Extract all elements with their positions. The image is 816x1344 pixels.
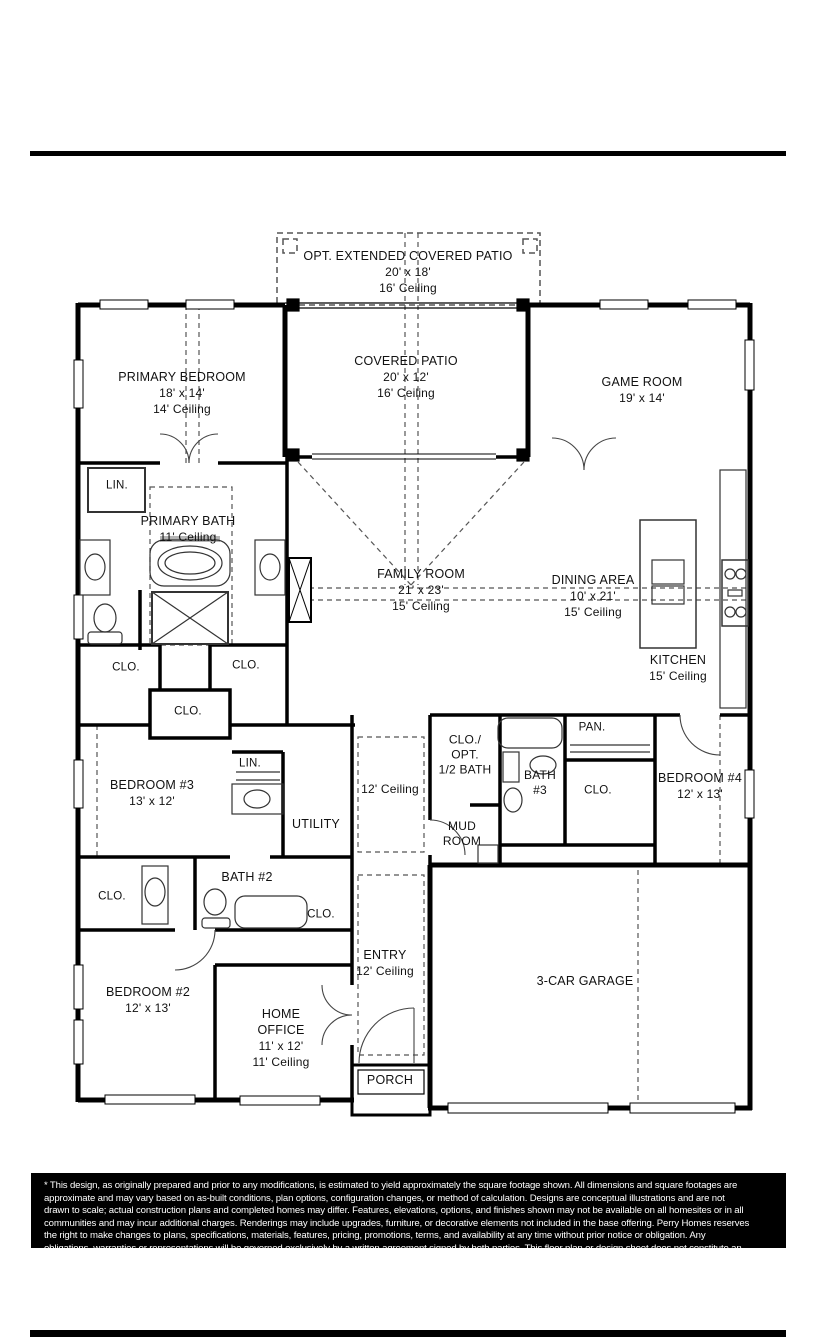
room-name: BEDROOM #4 [658, 770, 742, 786]
room-label-bedroom-2: BEDROOM #2 12' x 13' [106, 984, 190, 1016]
room-label-half-bath: CLO./ OPT. 1/2 BATH [439, 733, 492, 778]
room-dims: 12' x 13' [658, 786, 742, 802]
hall-ceiling-label: 12' Ceiling [361, 781, 419, 797]
floor-plan-page: OPT. EXTENDED COVERED PATIO 20' x 18' 16… [0, 0, 816, 1344]
room-name: KITCHEN [649, 652, 707, 668]
room-label-primary-bedroom: PRIMARY BEDROOM 18' x 14' 14' Ceiling [118, 369, 246, 417]
disclaimer-line: obligations, warranties or representatio… [44, 1243, 773, 1248]
room-label-dining-area: DINING AREA 10' x 21' 15' Ceiling [552, 572, 635, 620]
room-ceiling: 15' Ceiling [377, 598, 465, 614]
toilet-icon [204, 889, 226, 915]
tub-icon [498, 718, 562, 748]
room-ceiling: 14' Ceiling [118, 401, 246, 417]
room-name: GAME ROOM [602, 374, 683, 390]
cooktop-icon [722, 560, 748, 626]
sink-icon [145, 878, 165, 906]
toilet-icon [504, 788, 522, 812]
sink-icon [85, 554, 105, 580]
disclaimer-line: communities and may incur additional cha… [44, 1218, 773, 1231]
room-label-utility: UTILITY [292, 816, 340, 832]
room-ceiling: 11' Ceiling [141, 529, 236, 545]
room-dims: 10' x 21' [552, 588, 635, 604]
room-label-pantry: PAN. [579, 722, 606, 735]
room-label-bath-2: BATH #2 [221, 869, 272, 885]
room-ceiling: 15' Ceiling [552, 604, 635, 620]
room-label-bath-3: BATH #3 [524, 768, 556, 798]
tub-icon [235, 896, 307, 928]
closet-label-a: CLO. [112, 662, 140, 675]
room-name: FAMILY ROOM [377, 566, 465, 582]
disclaimer-line: drawn to scale; actual construction plan… [44, 1205, 773, 1218]
room-name: PRIMARY BATH [141, 513, 236, 529]
room-name: OPT. EXTENDED COVERED PATIO [303, 248, 512, 264]
closet-label-linen-primary: LIN. [106, 480, 128, 493]
room-label-kitchen: KITCHEN 15' Ceiling [649, 652, 707, 684]
room-dims: 12' x 13' [106, 1000, 190, 1016]
room-dims: 13' x 12' [110, 793, 194, 809]
bed3-vanity [232, 772, 283, 814]
room-dims: 21' x 23' [377, 582, 465, 598]
room-name: BEDROOM #3 [110, 777, 194, 793]
closet-label-f: CLO. [307, 909, 335, 922]
bottom-divider [30, 1330, 786, 1337]
room-dims: 20' x 18' [303, 264, 512, 280]
room-dims: 19' x 14' [602, 390, 683, 406]
room-label-opt-extended-covered-patio: OPT. EXTENDED COVERED PATIO 20' x 18' 16… [303, 248, 512, 296]
closet-label-e: CLO. [98, 891, 126, 904]
room-label-porch: PORCH [367, 1072, 413, 1088]
primary-bath-fixtures [80, 468, 285, 644]
disclaimer-line: * This design, as originally prepared an… [44, 1180, 773, 1193]
closet-label-d: CLO. [584, 785, 612, 798]
room-label-mud-room: MUD ROOM [443, 819, 481, 849]
tub-icon [150, 540, 230, 586]
closet-label-linen-b: LIN. [239, 758, 261, 771]
disclaimer-line: the right to make changes to plans, spec… [44, 1230, 773, 1243]
closet-label-b: CLO. [232, 660, 260, 673]
room-label-bedroom-3: BEDROOM #3 13' x 12' [110, 777, 194, 809]
room-label-garage: 3-CAR GARAGE [537, 973, 634, 989]
room-label-covered-patio: COVERED PATIO 20' x 12' 16' Ceiling [354, 353, 458, 401]
room-name: DINING AREA [552, 572, 635, 588]
room-name: PRIMARY BEDROOM [118, 369, 246, 385]
room-ceiling: 16' Ceiling [354, 385, 458, 401]
room-dims: 18' x 14' [118, 385, 246, 401]
sink-icon [260, 554, 280, 580]
room-label-bedroom-4: BEDROOM #4 12' x 13' [658, 770, 742, 802]
room-ceiling: 15' Ceiling [649, 668, 707, 684]
room-ceiling: 16' Ceiling [303, 280, 512, 296]
room-label-home-office: HOME OFFICE 11' x 12' 11' Ceiling [253, 1006, 310, 1070]
closet-label-c: CLO. [174, 706, 202, 719]
room-dims: 20' x 12' [354, 369, 458, 385]
sliding-doors [312, 454, 496, 459]
room-label-family-room: FAMILY ROOM 21' x 23' 15' Ceiling [377, 566, 465, 614]
room-name: BEDROOM #2 [106, 984, 190, 1000]
room-label-game-room: GAME ROOM 19' x 14' [602, 374, 683, 406]
room-name: COVERED PATIO [354, 353, 458, 369]
disclaimer-box: * This design, as originally prepared an… [31, 1173, 786, 1248]
disclaimer-line: approximate and may vary based on as-bui… [44, 1193, 773, 1206]
sink-icon [244, 790, 270, 808]
room-label-entry: ENTRY 12' Ceiling [356, 947, 414, 979]
fireplace [289, 558, 311, 622]
toilet-icon [94, 604, 116, 632]
room-label-primary-bath: PRIMARY BATH 11' Ceiling [141, 513, 236, 545]
